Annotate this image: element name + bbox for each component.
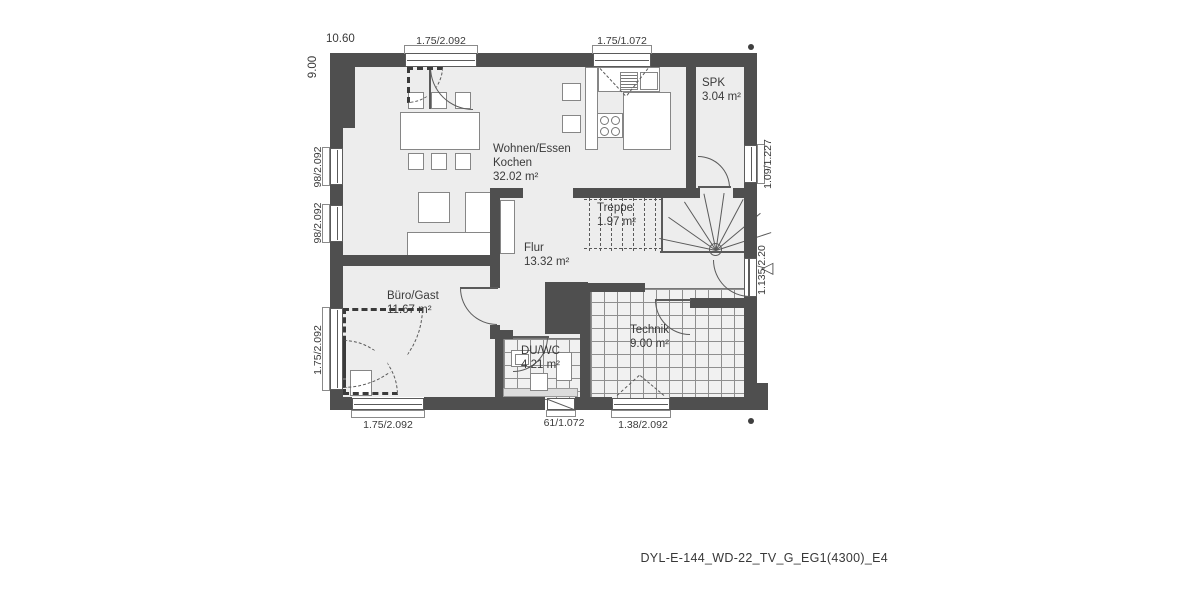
wall-segment	[330, 53, 757, 67]
wall-segment	[343, 60, 355, 128]
wall-segment	[690, 298, 744, 308]
dimension-label: 1.75/1.072	[597, 35, 647, 47]
window	[352, 398, 424, 410]
kitchen-window	[593, 53, 651, 67]
room-label-wohnen: Wohnen/Essen Kochen 32.02 m²	[493, 142, 571, 184]
chair	[431, 153, 447, 170]
dimension-label: 1.38/2.092	[618, 419, 668, 431]
dimension-label: 9.00	[307, 56, 319, 78]
wall-segment	[490, 188, 523, 198]
bath-fixture	[530, 373, 548, 391]
stair-tread	[589, 198, 590, 251]
stair-newel-circle	[709, 243, 722, 256]
wall-segment	[686, 67, 696, 188]
open-door-leaf	[500, 200, 515, 254]
drawing-code: DYL-E-144_WD-22_TV_G_EG1(4300)_E4	[640, 551, 888, 565]
wall-segment	[575, 397, 612, 410]
window	[330, 148, 343, 185]
survey-dot-icon	[748, 418, 754, 424]
buero-french-window	[330, 308, 343, 390]
dimension-label: 1.75/2.092	[416, 35, 466, 47]
dimension-label: 1.75/2.092	[312, 325, 324, 375]
technik-window	[612, 398, 670, 410]
stair-south-edge	[660, 251, 744, 253]
wall-segment	[330, 185, 343, 205]
room-label-duwc: DU/WC 4.21 m²	[521, 344, 560, 372]
wall-segment	[330, 242, 343, 308]
stair-edge	[584, 248, 662, 249]
wall-segment	[495, 330, 513, 339]
kitchen-sink	[620, 72, 638, 90]
window	[330, 205, 343, 242]
wall-segment	[330, 397, 352, 410]
window-sill	[351, 410, 425, 418]
window-sill	[611, 410, 671, 418]
dimension-label: 1.09/1.227	[762, 139, 774, 189]
wall-segment	[573, 188, 700, 198]
wall-segment	[495, 339, 503, 398]
kitchen-island	[562, 83, 581, 101]
burner-icon	[600, 127, 609, 136]
dimension-label: 1.135/2.20	[756, 245, 768, 295]
wall-segment	[490, 198, 500, 288]
stair-divider	[661, 198, 663, 252]
wall-segment	[330, 53, 343, 148]
stair-tread	[644, 198, 645, 251]
burner-icon	[600, 116, 609, 125]
terrace-door-window	[405, 53, 477, 67]
dimension-label: 61/1.072	[544, 417, 585, 429]
room-label-buero: Büro/Gast 11.67 m²	[387, 289, 439, 317]
room-label-flur: Flur 13.32 m²	[524, 241, 569, 269]
wall-segment	[580, 283, 590, 398]
wall-segment	[744, 297, 757, 410]
stair-edge	[584, 199, 662, 200]
survey-dot-icon	[748, 44, 754, 50]
wall-segment	[424, 397, 545, 410]
dimension-label: 98/2.092	[312, 147, 324, 188]
wall-segment	[343, 255, 500, 266]
window-sill	[546, 410, 576, 417]
wall-segment	[744, 53, 757, 145]
room-label-technik: Technik 9.00 m²	[630, 323, 669, 351]
kitchen-peninsula	[623, 92, 671, 150]
spk-window	[744, 145, 757, 183]
dimension-label: 98/2.092	[312, 203, 324, 244]
kitchen-island	[562, 115, 581, 133]
burner-icon	[611, 116, 620, 125]
room-label-spk: SPK 3.04 m²	[702, 76, 741, 104]
room-label-treppe: Treppe 1.97 m²	[597, 201, 636, 229]
dimension-label: 1.75/2.092	[363, 419, 413, 431]
dining-table	[400, 112, 480, 150]
floor-plan-canvas: ◁ Wohnen/Essen Kochen 32.02 m² SPK 3.04 …	[0, 0, 1200, 600]
dimension-label: 10.60	[326, 33, 355, 45]
wall-segment	[580, 283, 645, 292]
chair	[408, 153, 424, 170]
chair	[455, 153, 471, 170]
burner-icon	[611, 127, 620, 136]
stair-tread	[655, 198, 656, 251]
armchair	[418, 192, 450, 223]
wall-segment	[733, 188, 744, 198]
